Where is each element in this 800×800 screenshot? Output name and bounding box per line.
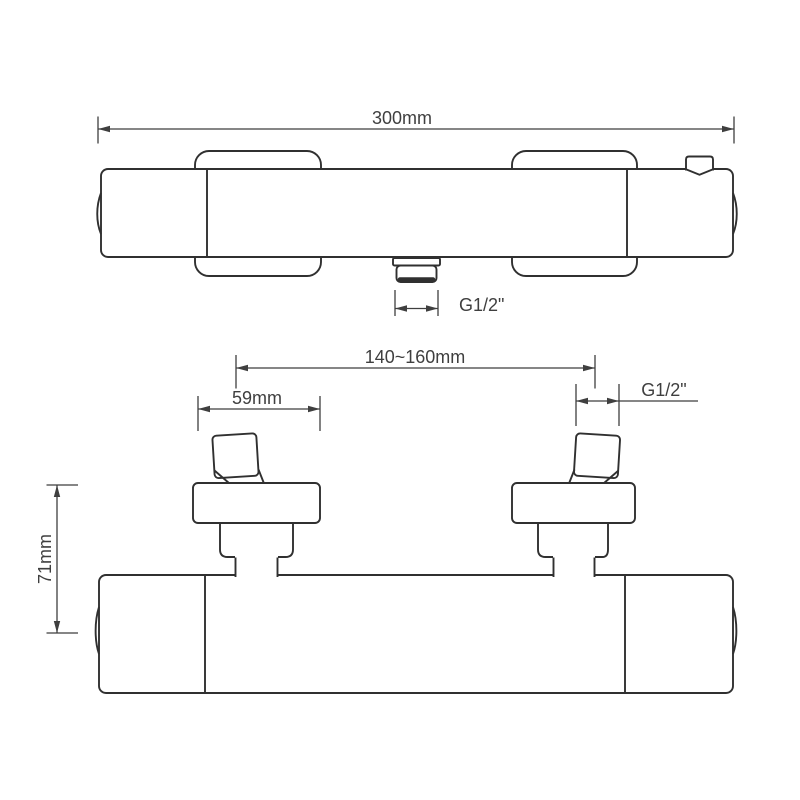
dim-overall-width-label: 300mm <box>372 108 432 128</box>
valve-body-top-view <box>101 169 733 257</box>
left-stem-opening <box>236 573 277 580</box>
dim-height-label: 71mm <box>35 534 55 584</box>
arrow-left-icon <box>236 365 248 371</box>
dim-inlet-thread: G1/2" <box>576 380 698 426</box>
front-view-fixture <box>96 433 737 693</box>
arrow-right-icon <box>722 126 734 132</box>
right-inlet-assembly <box>512 433 635 577</box>
arrow-left-icon <box>198 406 210 412</box>
dim-outlet-thread-lines <box>395 290 438 316</box>
left-inlet-flange <box>193 483 320 523</box>
left-inlet-assembly <box>193 433 320 577</box>
dim-inlet-spacing: 140~160mm <box>236 347 595 389</box>
arrow-right-icon <box>426 305 438 311</box>
arrow-left-icon <box>395 305 407 311</box>
diverter-button <box>686 157 713 171</box>
outlet-stub <box>393 258 440 282</box>
dim-flange-width-label: 59mm <box>232 388 282 408</box>
valve-body-front-view <box>99 575 733 693</box>
dim-height: 71mm <box>35 485 78 633</box>
right-inlet-flange <box>512 483 635 523</box>
outlet-flange <box>393 258 440 266</box>
arrow-up-icon <box>54 485 60 497</box>
top-view-fixture <box>97 151 737 282</box>
dim-inlet-thread-label: G1/2" <box>641 380 686 400</box>
top-view: 300mm G1/2" <box>97 108 737 316</box>
dim-outlet-thread: G1/2" <box>395 290 504 316</box>
arrow-right-icon <box>308 406 320 412</box>
right-inlet-mid-section <box>538 524 608 558</box>
right-stem-opening <box>554 573 594 580</box>
arrow-left-icon <box>576 398 588 404</box>
arrow-right-icon <box>583 365 595 371</box>
right-inlet-nipple <box>574 433 621 478</box>
dim-outlet-thread-label: G1/2" <box>459 295 504 315</box>
dim-inlet-spacing-label: 140~160mm <box>365 347 466 367</box>
arrow-down-icon <box>54 621 60 633</box>
front-view: 140~160mm 59mm G1/2" <box>35 347 736 693</box>
dim-outlet-thread-ink: G1/2" <box>395 295 504 315</box>
dim-overall-width: 300mm <box>98 108 734 144</box>
arrow-left-icon <box>98 126 110 132</box>
dim-flange-width: 59mm <box>198 388 320 431</box>
shower-valve-technical-drawing: 300mm G1/2" <box>0 0 800 800</box>
left-inlet-mid-section <box>220 524 293 558</box>
left-inlet-nipple <box>212 433 259 478</box>
arrow-right-icon <box>607 398 619 404</box>
